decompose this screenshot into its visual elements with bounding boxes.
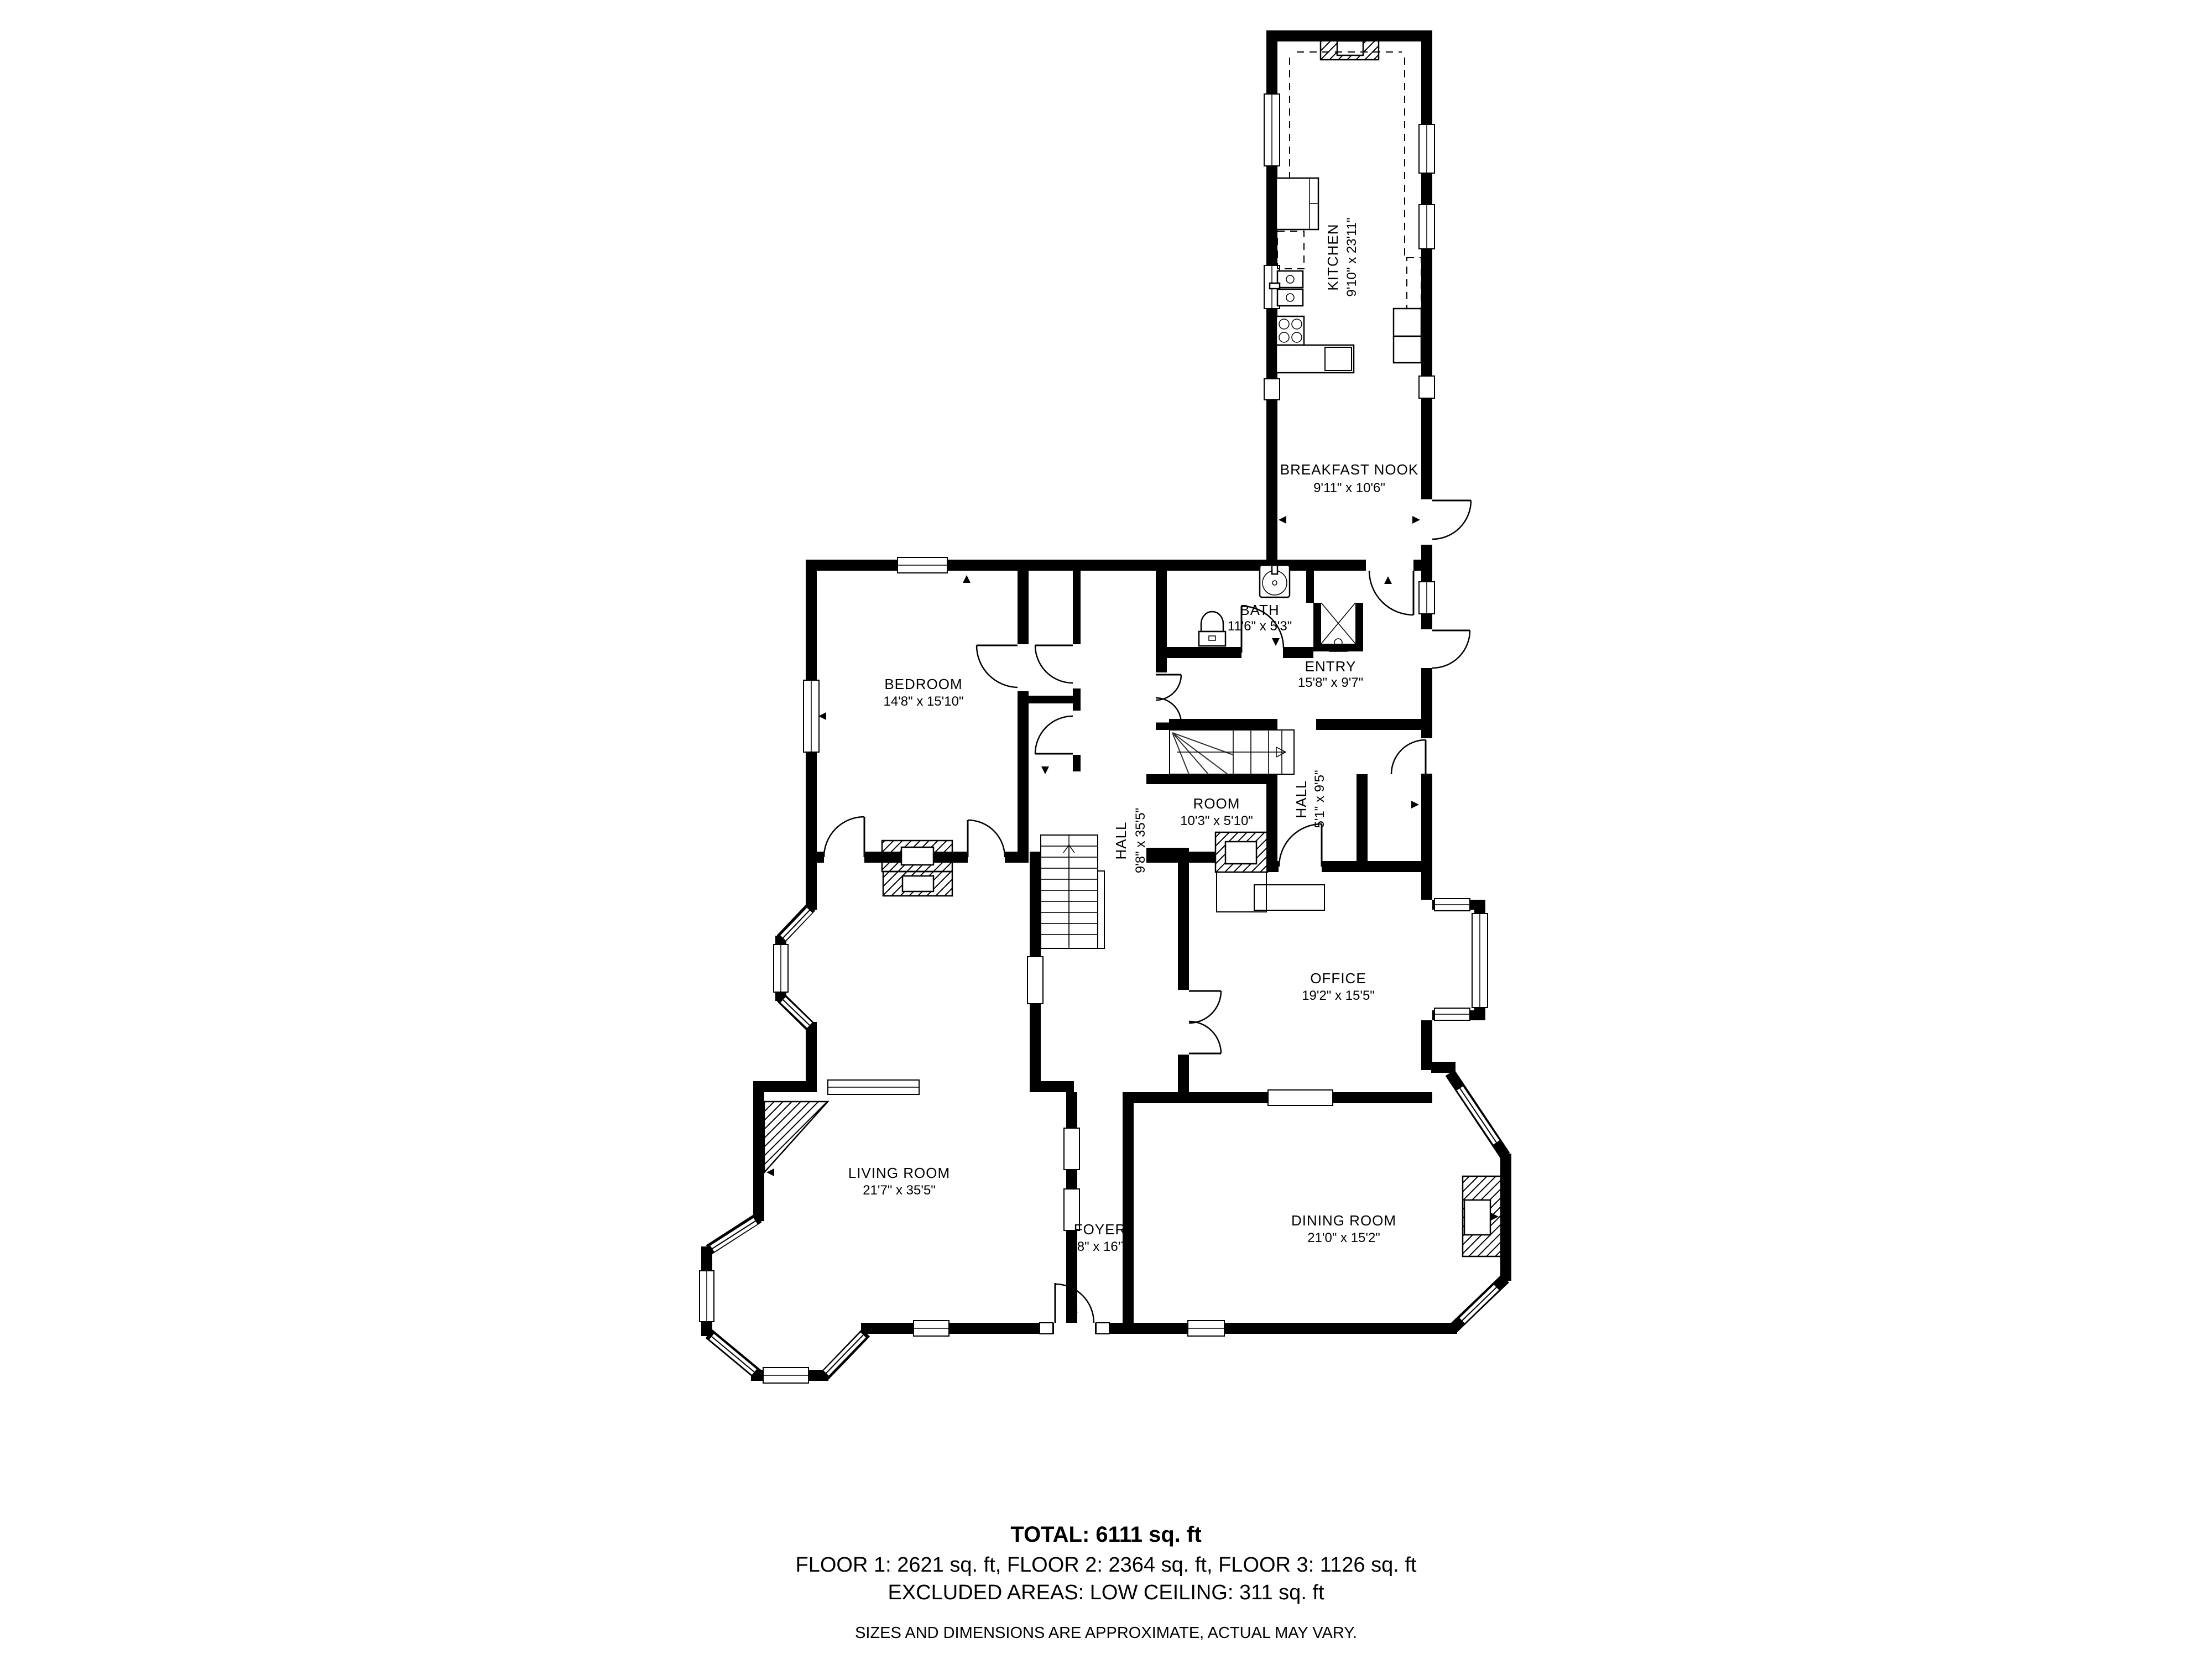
room-dims-dining-room: 21'0" x 15'2" bbox=[1307, 1230, 1380, 1245]
dimension-arrow bbox=[1279, 516, 1286, 524]
door-gap-bath bbox=[1241, 647, 1283, 658]
door-gap-bedroom bbox=[1015, 644, 1031, 691]
room-label-dining-room: DINING ROOM bbox=[1291, 1212, 1396, 1229]
door-gap-nook-entry bbox=[1366, 560, 1413, 571]
door-arc-bedroom-s1 bbox=[824, 817, 864, 857]
room-dims-entry: 15'8" x 9'7" bbox=[1298, 675, 1363, 690]
wall-room-top bbox=[1146, 774, 1277, 784]
wall-closet-divider bbox=[1029, 696, 1073, 703]
dimension-arrow bbox=[766, 1168, 774, 1176]
door-gap-bedroom-s2 bbox=[968, 852, 1005, 863]
wall-office-west bbox=[1178, 848, 1189, 1103]
dimension-arrow bbox=[1384, 576, 1392, 584]
wall-bedroom-east bbox=[1018, 571, 1029, 852]
stove-icon bbox=[1276, 316, 1304, 345]
door-gap-hall2-office bbox=[1279, 861, 1322, 872]
room-label-kitchen: KITCHEN bbox=[1324, 223, 1341, 290]
room-dims-hall: 9'8" x 35'5" bbox=[1133, 808, 1148, 873]
fireplace-room bbox=[1215, 832, 1267, 912]
dimension-arrow bbox=[818, 712, 826, 720]
dimension-arrow bbox=[1412, 516, 1420, 524]
door-arc-closet-2 bbox=[1035, 716, 1073, 754]
chimney-hatch-triangle bbox=[764, 1102, 828, 1172]
kitchen-fixtures bbox=[1270, 34, 1421, 373]
fireplace-dining-firebox bbox=[1464, 1200, 1490, 1235]
kitchen-counter-right bbox=[1394, 309, 1421, 363]
wall-bath-south bbox=[1157, 647, 1313, 658]
door-gap-bedroom-s1 bbox=[824, 852, 864, 863]
wall-foyer-east bbox=[1123, 1102, 1134, 1323]
door-arc-office-west-1 bbox=[1189, 991, 1221, 1023]
door-gap-closet-2 bbox=[1071, 711, 1083, 755]
floor-plan-page: KITCHEN 9'10" x 23'11" BREAKFAST NOOK 9'… bbox=[0, 0, 2212, 1659]
room-dims-room: 10'3" x 5'10" bbox=[1180, 813, 1253, 828]
wall-shower-stub bbox=[1306, 571, 1314, 603]
footer-excluded: EXCLUDED AREAS: LOW CEILING: 311 sq. ft bbox=[888, 1581, 1324, 1604]
stairs-winder-fan bbox=[1172, 733, 1233, 774]
window-kitchen-left-3 bbox=[1264, 379, 1280, 400]
door-arc-closet-1 bbox=[1035, 645, 1073, 683]
diagonal-windows bbox=[709, 907, 1505, 1376]
fireplace-room-firebox bbox=[1225, 842, 1256, 864]
fireplace-living-firebox bbox=[902, 876, 933, 891]
opening-hall-living bbox=[1027, 957, 1043, 1004]
door-arc-bedroom-s2 bbox=[968, 820, 1005, 857]
wall-east-1 bbox=[1421, 571, 1432, 582]
bath-fixtures bbox=[1199, 565, 1363, 651]
room-dims-breakfast-nook: 9'11" x 10'6" bbox=[1313, 481, 1385, 495]
office-desk bbox=[1254, 885, 1324, 910]
shower-icon bbox=[1313, 603, 1363, 651]
room-label-entry: ENTRY bbox=[1305, 658, 1357, 675]
door-gap-front bbox=[1054, 1323, 1095, 1334]
windows bbox=[700, 94, 1488, 1383]
wall-entry-south-a bbox=[1156, 719, 1277, 730]
counter-dashed-left bbox=[1277, 231, 1304, 269]
door-arc-nook-entry bbox=[1369, 571, 1413, 615]
door-gap-office-west bbox=[1176, 990, 1191, 1055]
door-gap-nook bbox=[1419, 499, 1434, 545]
wall-kitchen-right bbox=[1421, 30, 1432, 571]
door-arc-entry-east bbox=[1432, 630, 1470, 668]
room-dims-bedroom: 14'8" x 15'10" bbox=[884, 694, 964, 709]
wall-east-jog bbox=[1431, 1062, 1455, 1073]
opening-foyer-living-1 bbox=[1064, 1128, 1079, 1170]
dining-bay-window-ne bbox=[1450, 1073, 1505, 1156]
footer-disclaimer: SIZES AND DIMENSIONS ARE APPROXIMATE, AC… bbox=[855, 1624, 1357, 1642]
window-kitchen-right-3 bbox=[1419, 376, 1434, 398]
window-sidelight-right bbox=[1096, 1323, 1109, 1334]
doors bbox=[824, 499, 1471, 1334]
stairs-winder bbox=[1170, 730, 1294, 774]
dining-bay-window-se bbox=[1452, 1279, 1505, 1329]
room-dims-living-room: 21'7" x 35'5" bbox=[863, 1183, 936, 1198]
room-label-room: ROOM bbox=[1193, 795, 1240, 812]
wall-east-4 bbox=[1421, 1020, 1432, 1070]
stairs-main bbox=[1041, 835, 1104, 948]
fireplace-room-hearth bbox=[1217, 872, 1266, 912]
oct-bay-window-sw bbox=[709, 1334, 758, 1374]
room-dims-hall2: 5'1" x 9'5" bbox=[1312, 770, 1327, 828]
dimension-arrow bbox=[1041, 766, 1049, 774]
oct-bay-window-nw bbox=[709, 1218, 759, 1250]
room-dims-office: 19'2" x 15'5" bbox=[1302, 988, 1375, 1003]
room-label-living-room: LIVING ROOM bbox=[848, 1165, 950, 1181]
door-arc-office-west-2 bbox=[1189, 1021, 1221, 1053]
living-room-ledge bbox=[828, 1080, 919, 1094]
stairs-main-arrow-up bbox=[1063, 845, 1074, 946]
wall-bottom-dining bbox=[1123, 1323, 1457, 1334]
cabinet-dashed-right bbox=[1407, 258, 1421, 309]
door-gap-office-ne bbox=[1419, 738, 1434, 774]
room-dims-kitchen: 9'10" x 23'11" bbox=[1344, 217, 1359, 296]
fridge-icon bbox=[1276, 178, 1318, 229]
kitchen-counter-corner bbox=[1276, 345, 1354, 373]
stairs-main-railing bbox=[1098, 871, 1104, 948]
left-bay-window-lower bbox=[781, 998, 811, 1027]
bathroom-sink-icon bbox=[1260, 565, 1290, 597]
dimension-arrow bbox=[963, 575, 971, 583]
door-arc-hall2-office bbox=[1279, 824, 1322, 867]
door-gap-closet-1 bbox=[1071, 644, 1083, 688]
room-label-hall2: HALL bbox=[1293, 780, 1310, 818]
room-label-hall: HALL bbox=[1113, 821, 1129, 859]
left-bay-window-upper bbox=[781, 907, 811, 939]
wall-left-2 bbox=[753, 1091, 764, 1221]
exterior-walls bbox=[701, 30, 1511, 1381]
door-gap-entry-east bbox=[1419, 629, 1434, 668]
wall-hall-foyer-jog bbox=[1030, 1081, 1074, 1092]
door-arc-bedroom bbox=[977, 645, 1018, 687]
room-dims-bath: 11'6" x 5'3" bbox=[1228, 619, 1292, 634]
door-arc-nook bbox=[1432, 500, 1471, 539]
room-label-bedroom: BEDROOM bbox=[884, 676, 962, 692]
fireplace-bedroom bbox=[882, 841, 952, 896]
chimney-corner-living bbox=[764, 1102, 828, 1172]
wall-entry-south-b bbox=[1316, 719, 1432, 730]
dimension-arrow bbox=[1272, 638, 1280, 646]
room-dims-foyer: 9'8" x 16'7" bbox=[1067, 1239, 1133, 1254]
fireplace-bedroom-firebox bbox=[901, 847, 933, 865]
toilet-icon bbox=[1199, 612, 1225, 646]
room-label-foyer: FOYER bbox=[1074, 1221, 1126, 1238]
footer-total: TOTAL: 6111 sq. ft bbox=[1010, 1522, 1201, 1547]
wall-east-2 bbox=[1421, 614, 1432, 629]
oct-bay-window-se bbox=[824, 1333, 866, 1376]
desk bbox=[1254, 885, 1324, 910]
footer: TOTAL: 6111 sq. ft FLOOR 1: 2621 sq. ft,… bbox=[796, 1522, 1417, 1642]
wall-hall2-east bbox=[1357, 774, 1368, 872]
window-sidelight-left bbox=[1040, 1323, 1053, 1334]
floor-plan-drawing: KITCHEN 9'10" x 23'11" BREAKFAST NOOK 9'… bbox=[0, 0, 2212, 1659]
dimension-arrow bbox=[1411, 801, 1419, 808]
room-label-bath: BATH bbox=[1240, 602, 1279, 618]
room-label-office: OFFICE bbox=[1310, 970, 1366, 987]
room-label-breakfast-nook: BREAKFAST NOOK bbox=[1280, 461, 1418, 478]
footer-floors: FLOOR 1: 2621 sq. ft, FLOOR 2: 2364 sq. … bbox=[796, 1553, 1417, 1577]
skylight-inner bbox=[1337, 41, 1363, 55]
opening-office-dining bbox=[1268, 1090, 1333, 1105]
